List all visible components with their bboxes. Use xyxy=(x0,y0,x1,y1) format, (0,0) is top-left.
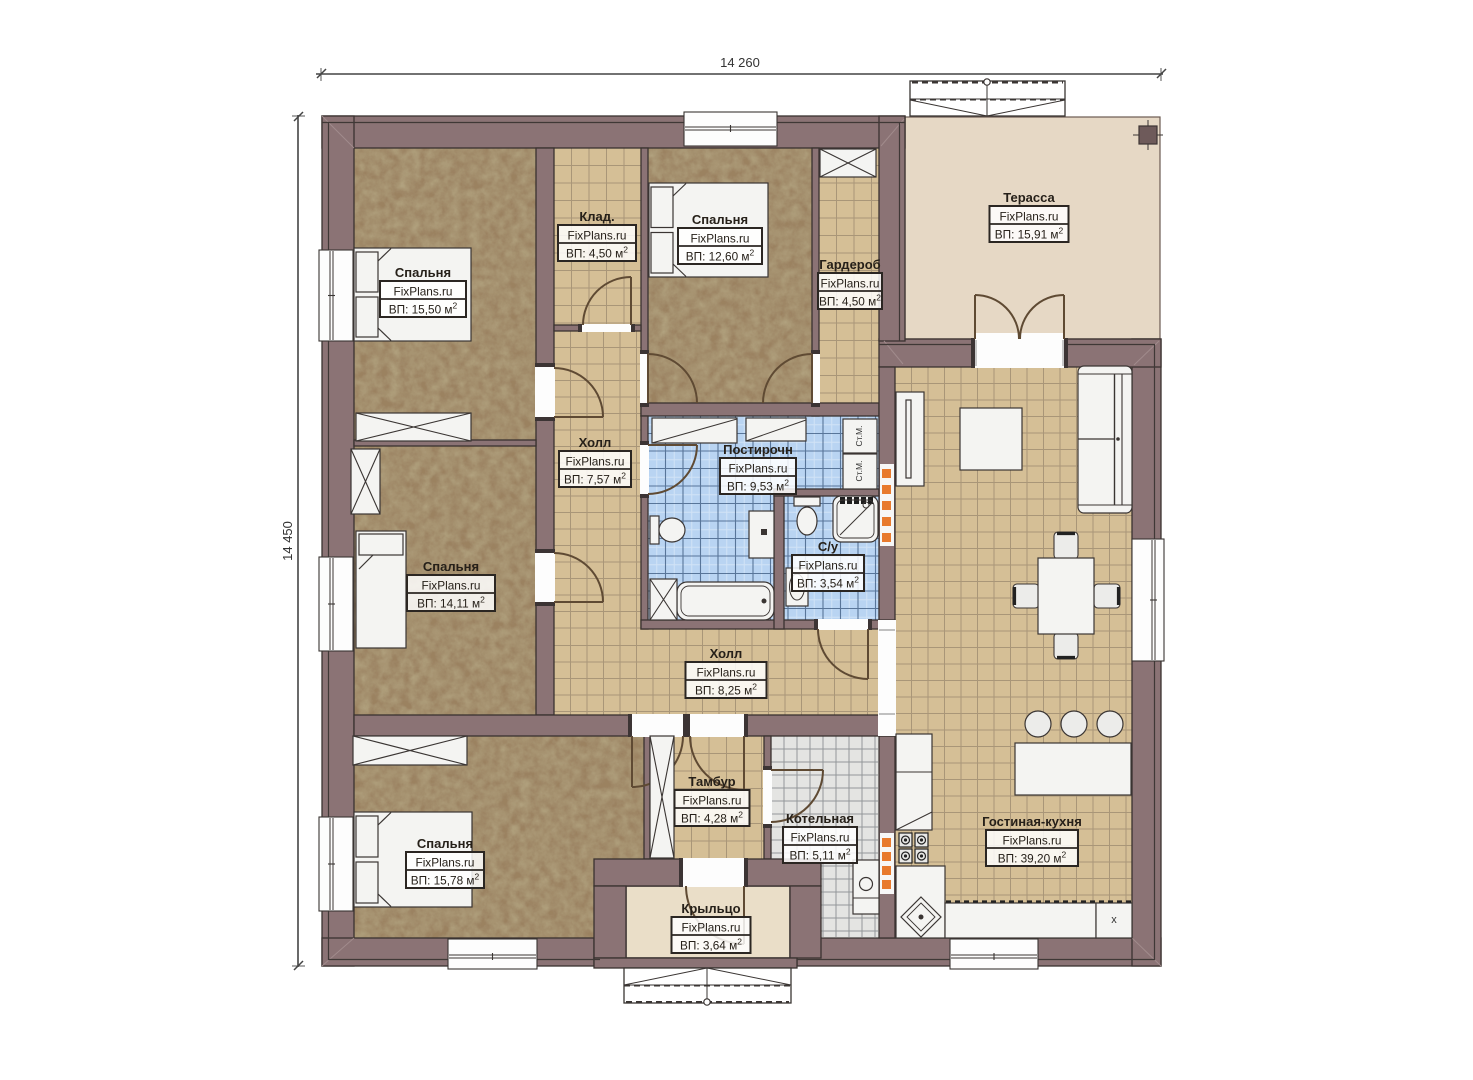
svg-text:FixPlans.ru: FixPlans.ru xyxy=(798,559,857,573)
svg-text:FixPlans.ru: FixPlans.ru xyxy=(567,229,626,243)
svg-text:FixPlans.ru: FixPlans.ru xyxy=(415,856,474,870)
svg-text:ВП: 4,50 м2: ВП: 4,50 м2 xyxy=(566,245,628,261)
svg-text:14 260: 14 260 xyxy=(720,55,760,70)
svg-text:Гардероб: Гардероб xyxy=(819,257,880,272)
svg-text:Терасса: Терасса xyxy=(1003,190,1055,205)
svg-text:FixPlans.ru: FixPlans.ru xyxy=(790,831,849,845)
svg-text:Холл: Холл xyxy=(710,646,743,661)
svg-text:Постирочн: Постирочн xyxy=(723,442,793,457)
svg-text:FixPlans.ru: FixPlans.ru xyxy=(728,462,787,476)
svg-text:ВП: 12,60 м2: ВП: 12,60 м2 xyxy=(686,248,755,264)
svg-text:С/у: С/у xyxy=(818,539,839,554)
svg-text:Котельная: Котельная xyxy=(786,811,854,826)
svg-text:ВП: 39,20 м2: ВП: 39,20 м2 xyxy=(998,850,1067,866)
svg-text:ВП: 8,25 м2: ВП: 8,25 м2 xyxy=(695,682,757,698)
svg-text:Ст.М.: Ст.М. xyxy=(854,426,864,447)
svg-text:ВП: 7,57 м2: ВП: 7,57 м2 xyxy=(564,471,626,487)
svg-text:Спальня: Спальня xyxy=(692,212,748,227)
svg-text:x: x xyxy=(1111,914,1117,926)
svg-text:FixPlans.ru: FixPlans.ru xyxy=(681,921,740,935)
svg-text:ВП: 15,50 м2: ВП: 15,50 м2 xyxy=(389,301,458,317)
svg-text:FixPlans.ru: FixPlans.ru xyxy=(682,794,741,808)
svg-text:FixPlans.ru: FixPlans.ru xyxy=(393,285,452,299)
svg-text:Гостиная-кухня: Гостиная-кухня xyxy=(982,814,1082,829)
svg-text:ВП: 15,78 м2: ВП: 15,78 м2 xyxy=(411,872,480,888)
svg-text:Клад.: Клад. xyxy=(579,209,614,224)
svg-text:ВП: 5,11 м2: ВП: 5,11 м2 xyxy=(789,847,850,863)
svg-text:ВП: 15,91 м2: ВП: 15,91 м2 xyxy=(995,226,1064,242)
svg-text:ВП: 3,54 м2: ВП: 3,54 м2 xyxy=(797,575,859,591)
svg-text:FixPlans.ru: FixPlans.ru xyxy=(690,232,749,246)
svg-text:FixPlans.ru: FixPlans.ru xyxy=(1002,834,1061,848)
svg-text:Спальня: Спальня xyxy=(423,559,479,574)
svg-text:Тамбур: Тамбур xyxy=(688,774,735,789)
svg-text:Ст.М.: Ст.М. xyxy=(854,461,864,482)
svg-text:Холл: Холл xyxy=(579,435,612,450)
svg-text:Спальня: Спальня xyxy=(395,265,451,280)
svg-text:FixPlans.ru: FixPlans.ru xyxy=(820,277,879,291)
svg-text:FixPlans.ru: FixPlans.ru xyxy=(565,455,624,469)
svg-text:ВП: 9,53 м2: ВП: 9,53 м2 xyxy=(727,478,789,494)
svg-text:14 450: 14 450 xyxy=(280,521,295,561)
svg-text:FixPlans.ru: FixPlans.ru xyxy=(999,210,1058,224)
svg-text:ВП: 4,28 м2: ВП: 4,28 м2 xyxy=(681,810,743,826)
svg-text:FixPlans.ru: FixPlans.ru xyxy=(421,579,480,593)
svg-text:ВП: 14,11 м2: ВП: 14,11 м2 xyxy=(417,595,485,611)
svg-text:ВП: 4,50 м2: ВП: 4,50 м2 xyxy=(819,293,881,309)
svg-text:Крыльцо: Крыльцо xyxy=(681,901,740,916)
svg-text:Спальня: Спальня xyxy=(417,836,473,851)
svg-text:FixPlans.ru: FixPlans.ru xyxy=(696,666,755,680)
svg-text:ВП: 3,64 м2: ВП: 3,64 м2 xyxy=(680,937,742,953)
